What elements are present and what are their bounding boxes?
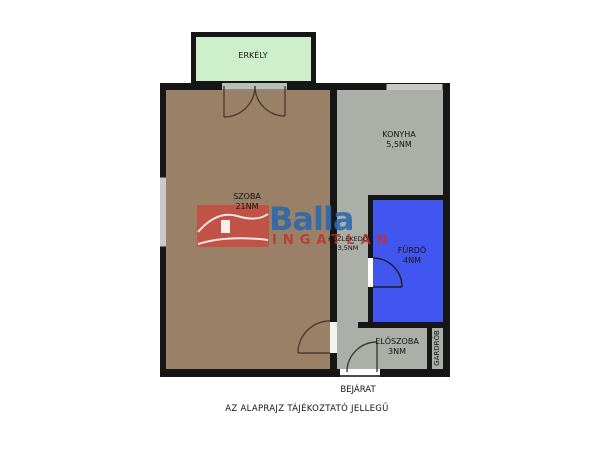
room-label-erkely: ERKÉLY <box>238 51 267 61</box>
floorplan: Balla INGATLAN ERKÉLY SZOBA21NM KONYHA5,… <box>0 0 600 450</box>
wall-furdo-bottom-extension <box>358 322 370 328</box>
doorway-szoba <box>330 322 337 353</box>
window-konyha-top <box>386 84 443 90</box>
disclaimer-text: AZ ALAPRAJZ TÁJÉKOZTATÓ JELLEGŰ <box>225 404 388 414</box>
room-label-konyha: KONYHA5,5NM <box>382 130 415 150</box>
window-szoba-left <box>160 177 166 247</box>
room-label-eloszoba: ELŐSZOBA3NM <box>375 337 419 357</box>
balcony-door-threshold <box>222 83 287 90</box>
watermark-brand: Balla <box>269 204 354 234</box>
room-label-gardrob: GARDRÓB <box>432 330 442 366</box>
doorway-entrance <box>340 369 380 377</box>
entrance-label: BEJÁRAT <box>340 385 375 395</box>
room-label-kozlekedo: KÖZLEKEDŐ3,5NM <box>328 235 368 252</box>
room-label-szoba: SZOBA21NM <box>233 192 261 212</box>
room-label-furdo: FÜRDŐ4NM <box>398 246 426 266</box>
doorway-furdo <box>368 258 373 287</box>
